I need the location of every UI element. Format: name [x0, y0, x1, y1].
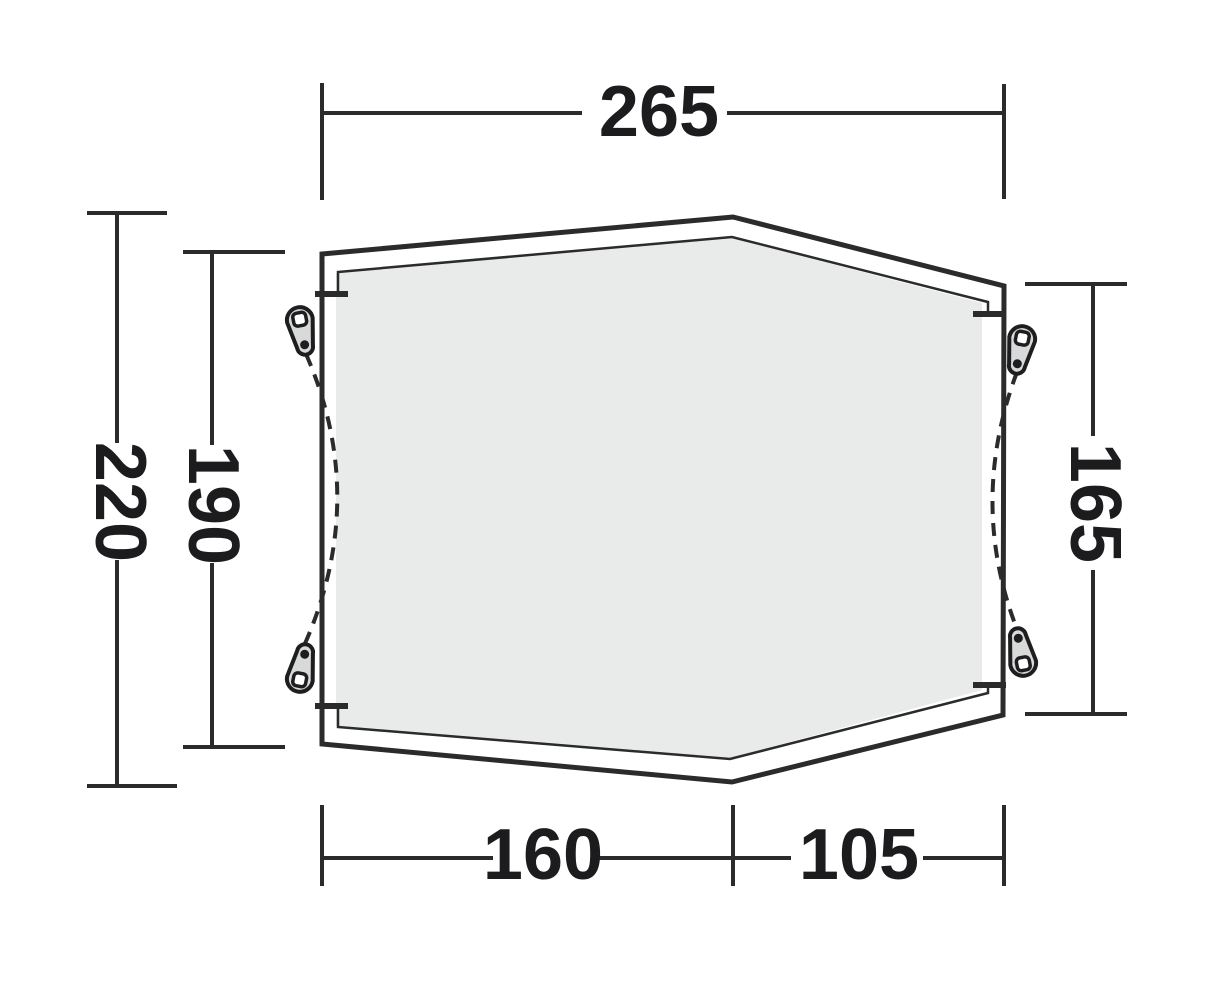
guyline-attachment-icon-right-top — [1003, 324, 1038, 376]
dimension-bottom-widths: 160 105 — [322, 805, 1004, 895]
dimension-total-depth: 220 — [80, 213, 177, 786]
dimension-label-bottom-left-width: 160 — [483, 815, 603, 895]
footprint-drawing-canvas: 265 220 190 165 160 105 — [0, 0, 1230, 982]
guyline-attachment-icon-left-top — [285, 305, 320, 357]
dimension-label-bottom-right-width: 105 — [799, 815, 919, 895]
dimension-label-top-width: 265 — [599, 72, 719, 152]
guyline-attachment-icon-right-bottom — [1004, 626, 1039, 678]
groundsheet-area — [336, 238, 982, 758]
guyline-attachment-icon-left-bottom — [285, 642, 320, 694]
dimension-left-side-depth: 190 — [173, 252, 285, 747]
dimension-label-right-side-depth: 165 — [1055, 443, 1135, 563]
dimension-label-total-depth: 220 — [80, 442, 160, 562]
dimension-top-width: 265 — [322, 72, 1004, 200]
dimension-right-side-depth: 165 — [1025, 284, 1135, 714]
dimension-label-left-side-depth: 190 — [173, 445, 253, 565]
tent-footprint-diagram: 265 220 190 165 160 105 — [0, 0, 1230, 982]
